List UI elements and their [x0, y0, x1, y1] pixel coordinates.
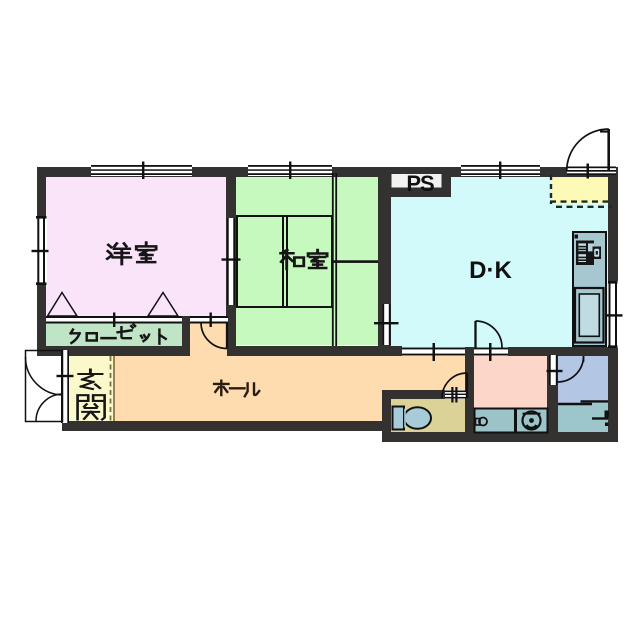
svg-text:D·K: D·K [469, 257, 512, 284]
svg-text:PS: PS [406, 171, 434, 196]
